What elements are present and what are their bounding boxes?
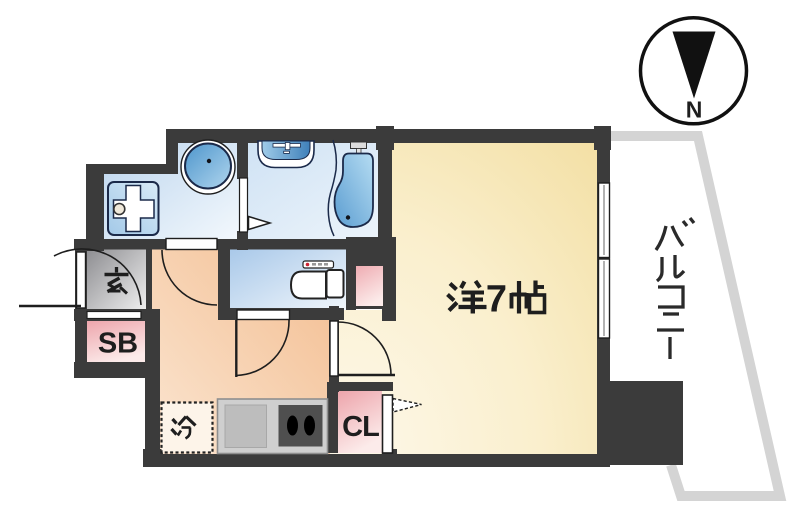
svg-text:CL: CL — [342, 411, 379, 443]
svg-text:7: 7 — [486, 279, 507, 321]
svg-text:N: N — [686, 97, 703, 123]
svg-text:SB: SB — [98, 328, 138, 360]
